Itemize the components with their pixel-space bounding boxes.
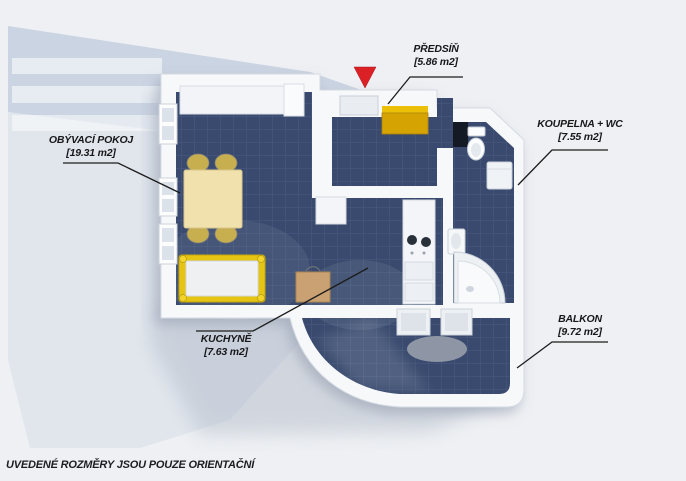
window-icon bbox=[159, 104, 177, 144]
entrance-door bbox=[340, 96, 378, 115]
washing-machine bbox=[487, 162, 512, 189]
wall-cabinet-unit bbox=[284, 84, 304, 116]
toilet bbox=[468, 127, 486, 160]
leader-balkon bbox=[517, 342, 608, 368]
background-stripes bbox=[12, 58, 162, 131]
wooden-crate bbox=[296, 267, 330, 303]
entrance-arrow-icon bbox=[354, 67, 376, 88]
dining-table bbox=[184, 170, 242, 228]
leader-koupelna bbox=[518, 150, 608, 185]
planter-box bbox=[397, 309, 430, 335]
planter-box bbox=[441, 309, 472, 335]
bathroom-entry-floor bbox=[437, 98, 453, 148]
stove-unit bbox=[403, 200, 435, 304]
disclaimer-text: UVEDENÉ ROZMĚRY JSOU POUZE ORIENTAČNÍ bbox=[6, 459, 254, 471]
window-icon bbox=[159, 224, 177, 264]
floorplan-page: PŘEDSÍŇ [5.86 m2] OBÝVACÍ POKOJ [19.31 m… bbox=[0, 0, 686, 481]
yellow-cabinet bbox=[382, 106, 428, 134]
shaft bbox=[453, 122, 468, 147]
kitchen-counter bbox=[316, 197, 346, 224]
sink bbox=[448, 229, 465, 254]
bed bbox=[179, 255, 265, 302]
balcony-rug bbox=[407, 336, 467, 362]
floorplan-svg bbox=[0, 0, 686, 481]
